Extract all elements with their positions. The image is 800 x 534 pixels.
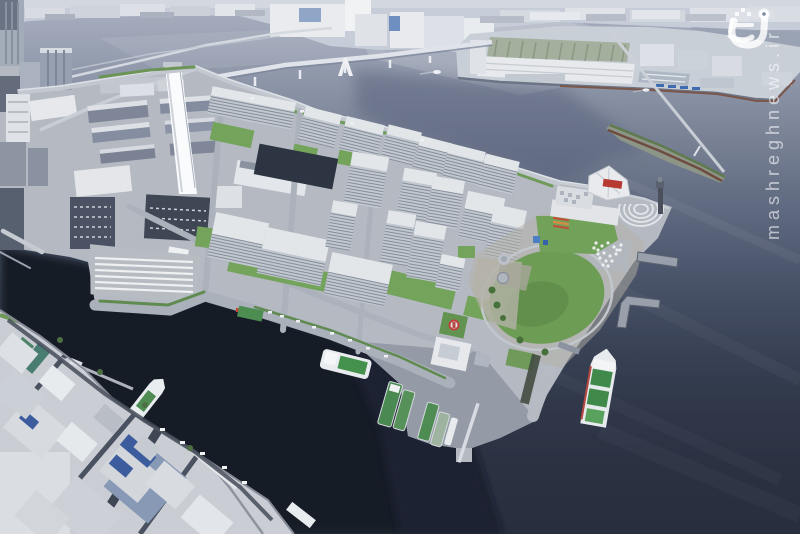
svg-text:mashreghnews.ir: mashreghnews.ir	[763, 28, 783, 240]
